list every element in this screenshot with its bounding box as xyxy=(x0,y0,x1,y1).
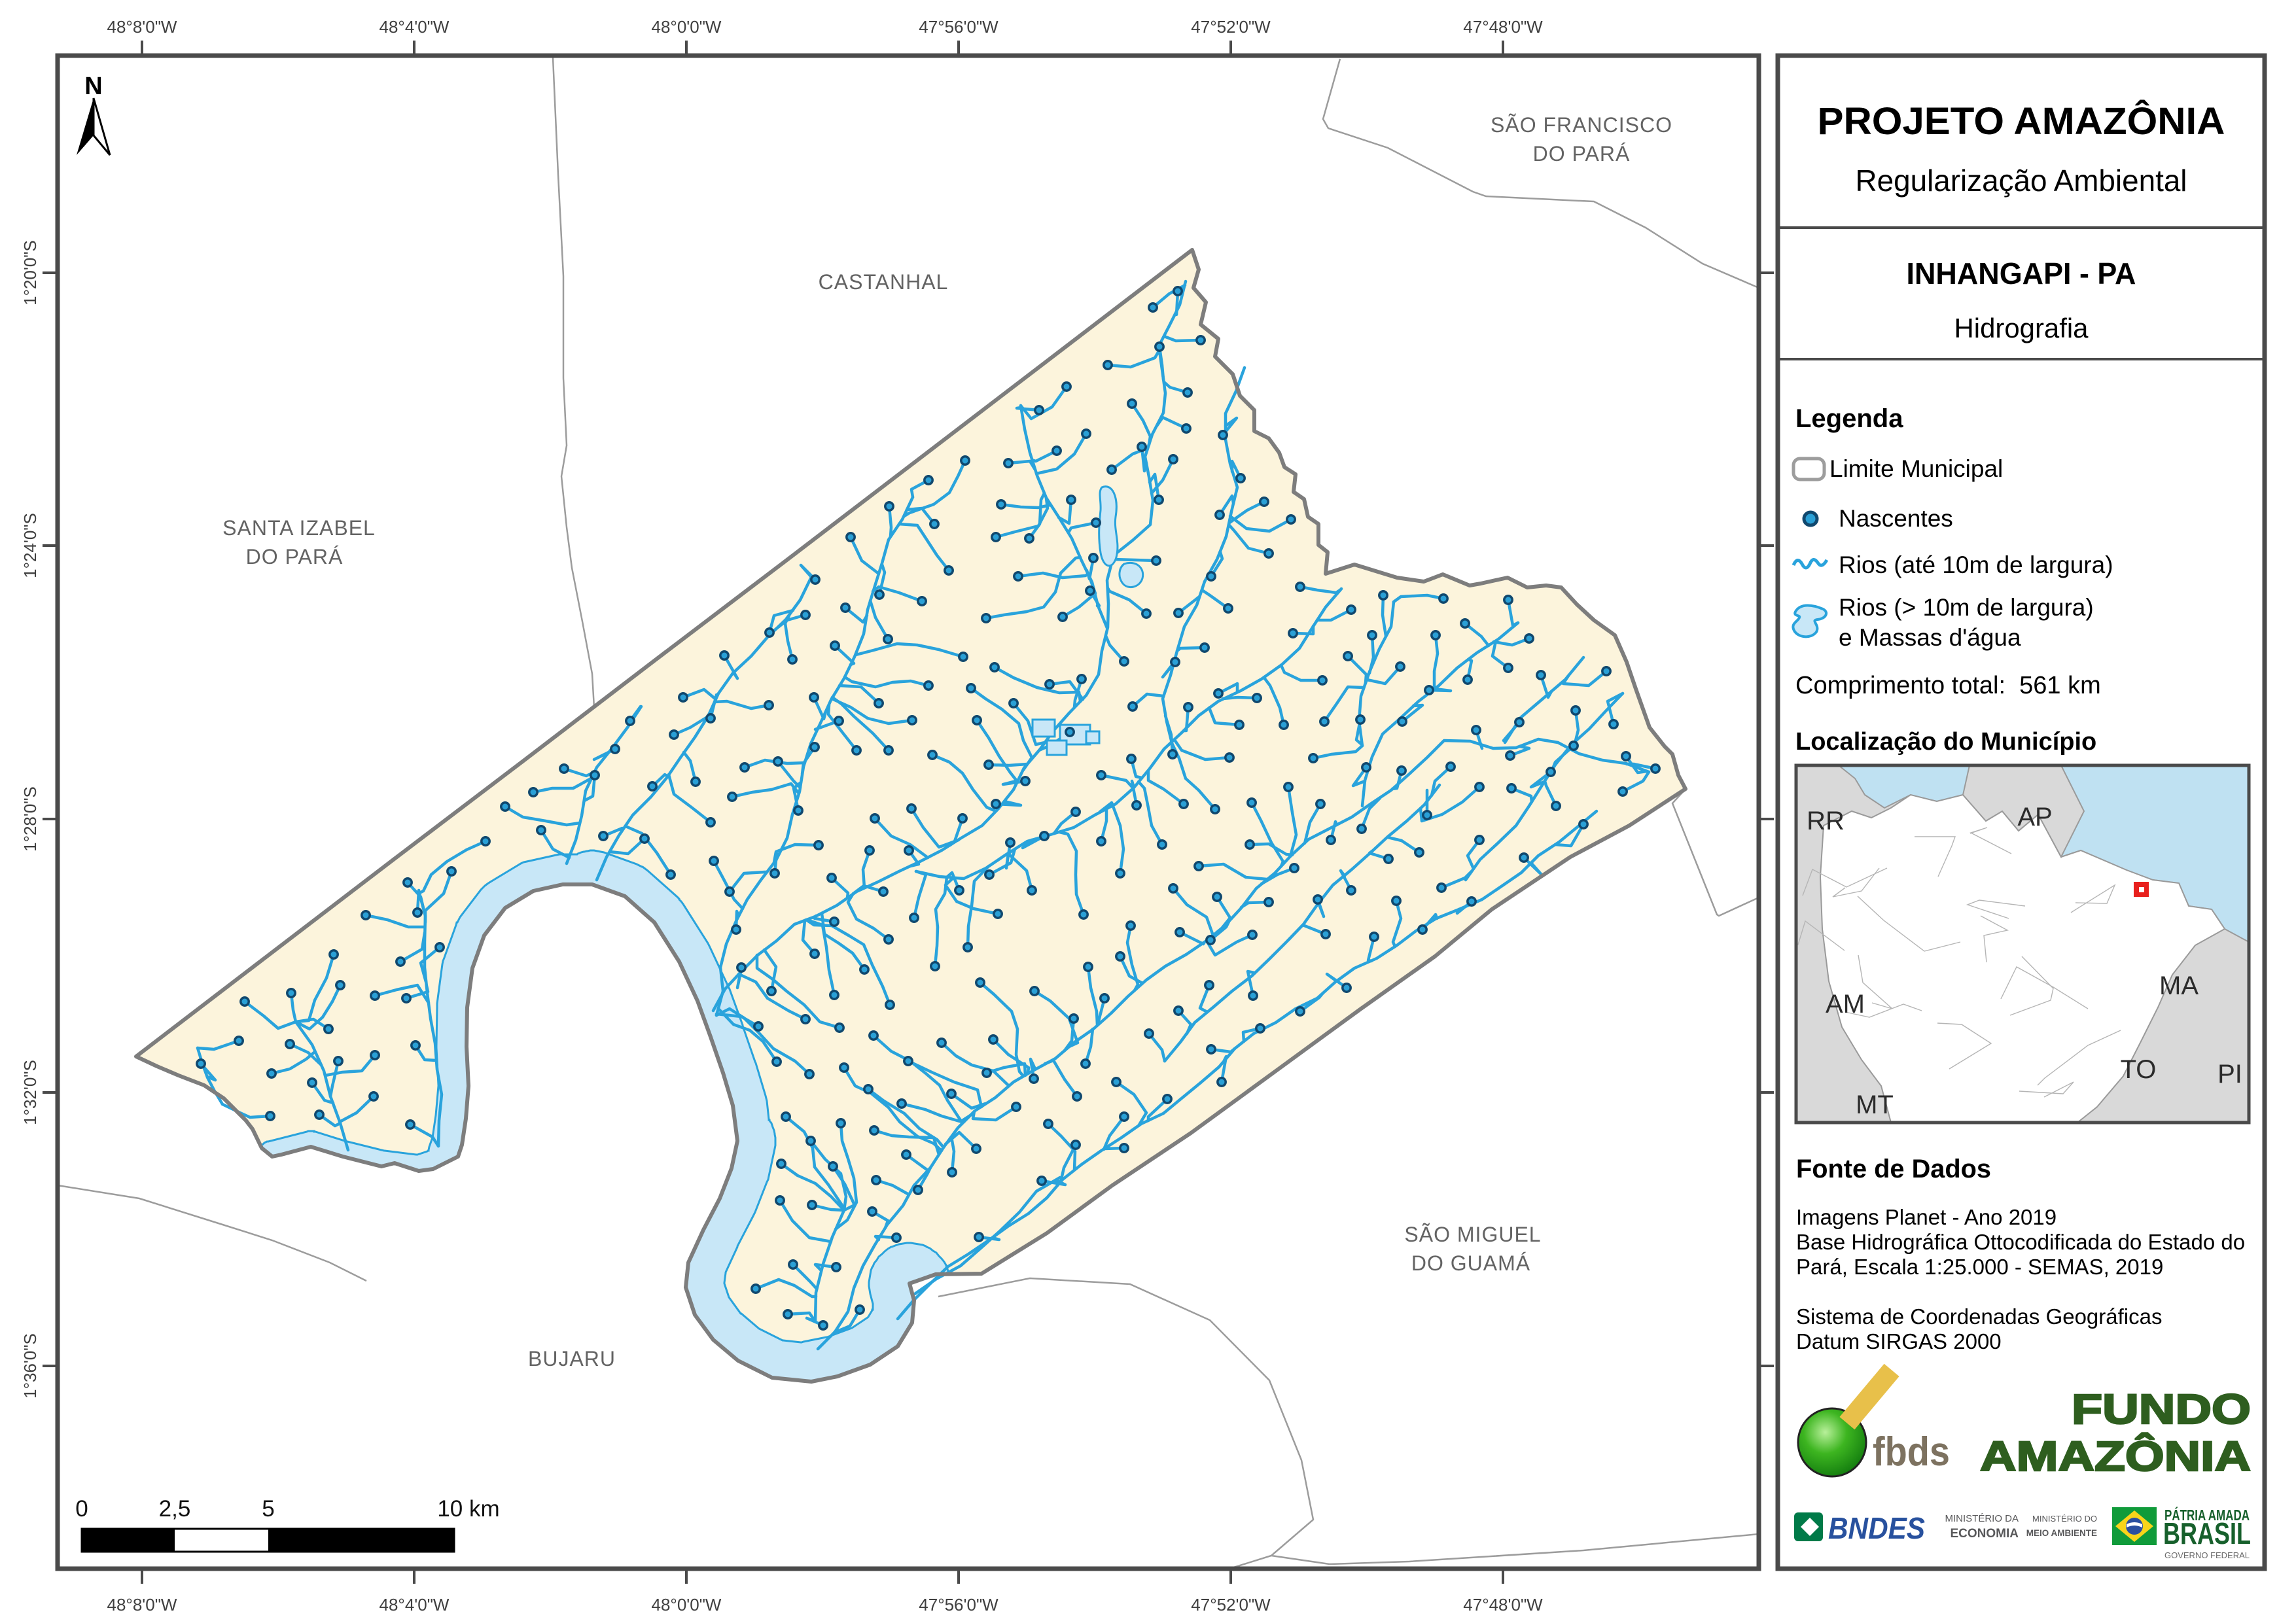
svg-text:TO: TO xyxy=(2121,1055,2157,1084)
svg-text:MINISTÉRIO DO: MINISTÉRIO DO xyxy=(2032,1514,2097,1524)
svg-text:INHANGAPI - PA: INHANGAPI - PA xyxy=(1907,256,2136,290)
svg-text:ECONOMIA: ECONOMIA xyxy=(1951,1527,2019,1541)
svg-text:SÃO FRANCISCO: SÃO FRANCISCO xyxy=(1491,113,1672,137)
svg-text:47°48'0"W: 47°48'0"W xyxy=(1463,1595,1543,1614)
svg-text:47°48'0"W: 47°48'0"W xyxy=(1463,17,1543,37)
svg-text:DO GUAMÁ: DO GUAMÁ xyxy=(1411,1251,1530,1275)
svg-text:AMAZÔNIA: AMAZÔNIA xyxy=(1980,1432,2251,1480)
svg-text:48°4'0"W: 48°4'0"W xyxy=(380,1595,450,1614)
svg-text:N: N xyxy=(84,73,102,100)
svg-text:Localização do Município: Localização do Município xyxy=(1795,728,2096,756)
svg-text:Datum SIRGAS 2000: Datum SIRGAS 2000 xyxy=(1796,1329,2002,1353)
svg-text:SANTA IZABEL: SANTA IZABEL xyxy=(222,516,376,540)
svg-text:5: 5 xyxy=(262,1496,274,1522)
svg-text:0: 0 xyxy=(75,1496,88,1522)
svg-text:Rios (até 10m de largura): Rios (até 10m de largura) xyxy=(1839,551,2113,578)
svg-text:Nascentes: Nascentes xyxy=(1839,505,1953,532)
svg-text:CASTANHAL: CASTANHAL xyxy=(819,270,949,294)
svg-text:Pará, Escala 1:25.000 - SEMAS,: Pará, Escala 1:25.000 - SEMAS, 2019 xyxy=(1796,1255,2163,1279)
svg-text:AP: AP xyxy=(2017,803,2052,831)
svg-text:DO PARÁ: DO PARÁ xyxy=(246,545,344,568)
svg-text:1°20'0"S: 1°20'0"S xyxy=(20,240,40,305)
svg-text:Comprimento total: 561 km: Comprimento total: 561 km xyxy=(1795,672,2101,699)
svg-text:2,5: 2,5 xyxy=(159,1496,191,1522)
svg-text:Base Hidrográfica Ottocodifica: Base Hidrográfica Ottocodificada do Esta… xyxy=(1796,1230,2245,1254)
svg-text:MA: MA xyxy=(2159,971,2199,1000)
svg-text:Imagens Planet - Ano 2019: Imagens Planet - Ano 2019 xyxy=(1796,1205,2057,1229)
svg-text:DO PARÁ: DO PARÁ xyxy=(1533,142,1631,166)
svg-text:47°52'0"W: 47°52'0"W xyxy=(1191,17,1271,37)
svg-text:48°8'0"W: 48°8'0"W xyxy=(107,17,177,37)
svg-text:Fonte de Dados: Fonte de Dados xyxy=(1796,1155,1991,1183)
svg-text:MINISTÉRIO DA: MINISTÉRIO DA xyxy=(1945,1513,2019,1524)
svg-text:SÃO MIGUEL: SÃO MIGUEL xyxy=(1404,1223,1541,1246)
svg-text:48°0'0"W: 48°0'0"W xyxy=(652,17,722,37)
svg-text:MT: MT xyxy=(1856,1091,1894,1119)
svg-text:1°36'0"S: 1°36'0"S xyxy=(20,1333,40,1399)
svg-text:47°56'0"W: 47°56'0"W xyxy=(919,1595,998,1614)
svg-text:Legenda: Legenda xyxy=(1795,404,1903,433)
svg-text:1°28'0"S: 1°28'0"S xyxy=(20,786,40,852)
svg-text:47°52'0"W: 47°52'0"W xyxy=(1191,1595,1271,1614)
svg-text:PI: PI xyxy=(2217,1060,2242,1089)
svg-text:1°32'0"S: 1°32'0"S xyxy=(20,1060,40,1125)
svg-text:BNDES: BNDES xyxy=(1828,1511,1925,1545)
svg-text:MEIO AMBIENTE: MEIO AMBIENTE xyxy=(2026,1528,2097,1538)
svg-text:Regularização Ambiental: Regularização Ambiental xyxy=(1856,164,2187,198)
svg-text:RR: RR xyxy=(1807,807,1845,835)
svg-text:Sistema de Coordenadas Geográf: Sistema de Coordenadas Geográficas xyxy=(1796,1304,2163,1329)
svg-text:AM: AM xyxy=(1826,990,1865,1019)
svg-text:FUNDO: FUNDO xyxy=(2072,1386,2251,1433)
svg-text:PROJETO AMAZÔNIA: PROJETO AMAZÔNIA xyxy=(1818,100,2225,143)
svg-text:48°0'0"W: 48°0'0"W xyxy=(652,1595,722,1614)
svg-text:48°4'0"W: 48°4'0"W xyxy=(380,17,450,37)
svg-text:BUJARU: BUJARU xyxy=(528,1347,616,1370)
svg-text:fbds: fbds xyxy=(1873,1429,1950,1475)
svg-text:Hidrografia: Hidrografia xyxy=(1954,313,2089,343)
svg-text:Rios (> 10m de largura): Rios (> 10m de largura) xyxy=(1839,594,2094,621)
svg-text:48°8'0"W: 48°8'0"W xyxy=(107,1595,177,1614)
svg-text:10 km: 10 km xyxy=(437,1496,499,1522)
svg-text:e Massas d'água: e Massas d'água xyxy=(1839,624,2021,651)
svg-text:1°24'0"S: 1°24'0"S xyxy=(20,513,40,578)
svg-text:47°56'0"W: 47°56'0"W xyxy=(919,17,998,37)
svg-text:GOVERNO FEDERAL: GOVERNO FEDERAL xyxy=(2164,1550,2250,1560)
svg-text:BRASIL: BRASIL xyxy=(2163,1516,2251,1550)
svg-text:Limite Municipal: Limite Municipal xyxy=(1829,455,2003,482)
